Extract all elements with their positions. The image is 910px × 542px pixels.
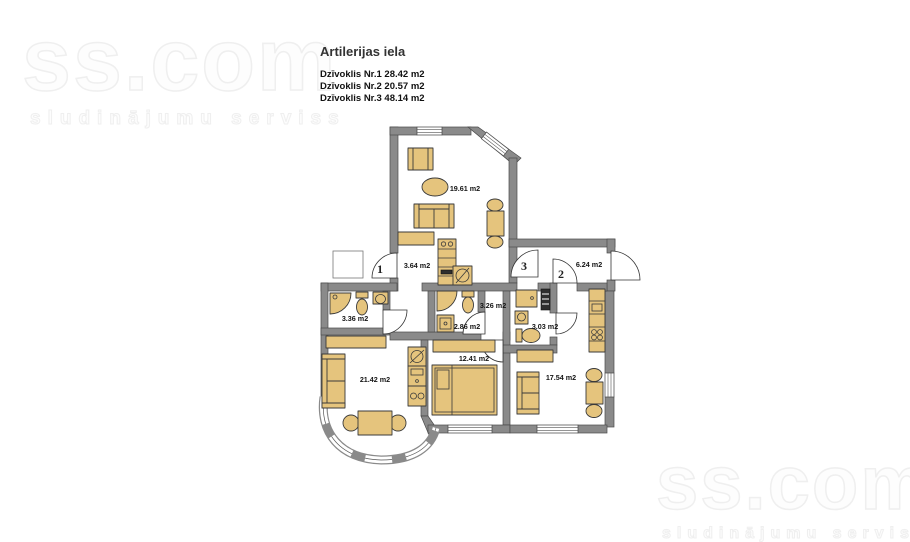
wardrobe [433,340,495,352]
toilet-tank [462,291,474,297]
kitchen-unit-1 [438,239,472,285]
washing-machine [437,315,454,332]
wardrobe [326,336,386,348]
room-label-bath1: 3.36 m2 [342,314,368,323]
table [358,411,392,435]
window-diagonal [481,132,508,156]
bathroom-2-fixtures [515,289,550,343]
table-set [586,369,603,418]
unit-number-2: 2 [558,267,564,281]
room-label-bath3: 2.86 m2 [454,322,480,331]
window-right [605,373,614,397]
bed [432,365,497,415]
room-label-living-right: 17.54 m2 [546,373,576,382]
door-bath1 [383,310,407,334]
kitchenette [408,347,426,406]
entrance-porch [333,251,363,278]
bathroom-1-fixtures [330,292,388,315]
wardrobe [517,350,553,362]
wardrobe [398,232,434,245]
toilet-tank [516,329,522,342]
dining-set [487,199,504,248]
sofa [517,372,539,414]
door-unit2 [553,259,577,283]
room-label-hall1: 3.64 m2 [404,261,430,270]
chair [586,405,602,418]
window-living-right [537,425,578,433]
chair [487,199,503,211]
door-bath2 [556,313,577,334]
sofa [414,204,454,228]
chair [586,369,602,382]
oval-table [422,178,448,196]
room-label-bedroom: 12.41 m2 [459,354,489,363]
shower [437,291,457,311]
dining-table [487,211,504,236]
room-label-bath2: 3.03 m2 [532,322,558,331]
armchair [408,148,433,170]
window-bedroom [448,425,492,433]
floor-plan: 19.61 m2 3.64 m2 6.24 m2 3.36 m2 3.26 m2… [0,0,910,536]
toilet-tank [356,292,368,298]
unit-number-3: 3 [521,259,527,273]
room-label-corridor3: 3.26 m2 [480,301,506,310]
toilet [357,299,368,315]
chair [487,236,503,248]
door-unit1 [372,253,397,278]
table [586,382,603,404]
unit-number-1: 1 [377,262,383,276]
room-label-hall2: 6.24 m2 [576,260,602,269]
sofa [322,354,345,408]
chair [343,415,359,431]
kitchen-unit-2 [589,289,605,352]
table-set [343,411,406,435]
toilet [463,297,474,313]
cabinet [516,290,537,307]
door-main-entrance [611,251,640,280]
window-top [417,127,442,135]
room-label-living-left: 21.42 m2 [360,375,390,384]
room-label-living-top: 19.61 m2 [450,184,480,193]
